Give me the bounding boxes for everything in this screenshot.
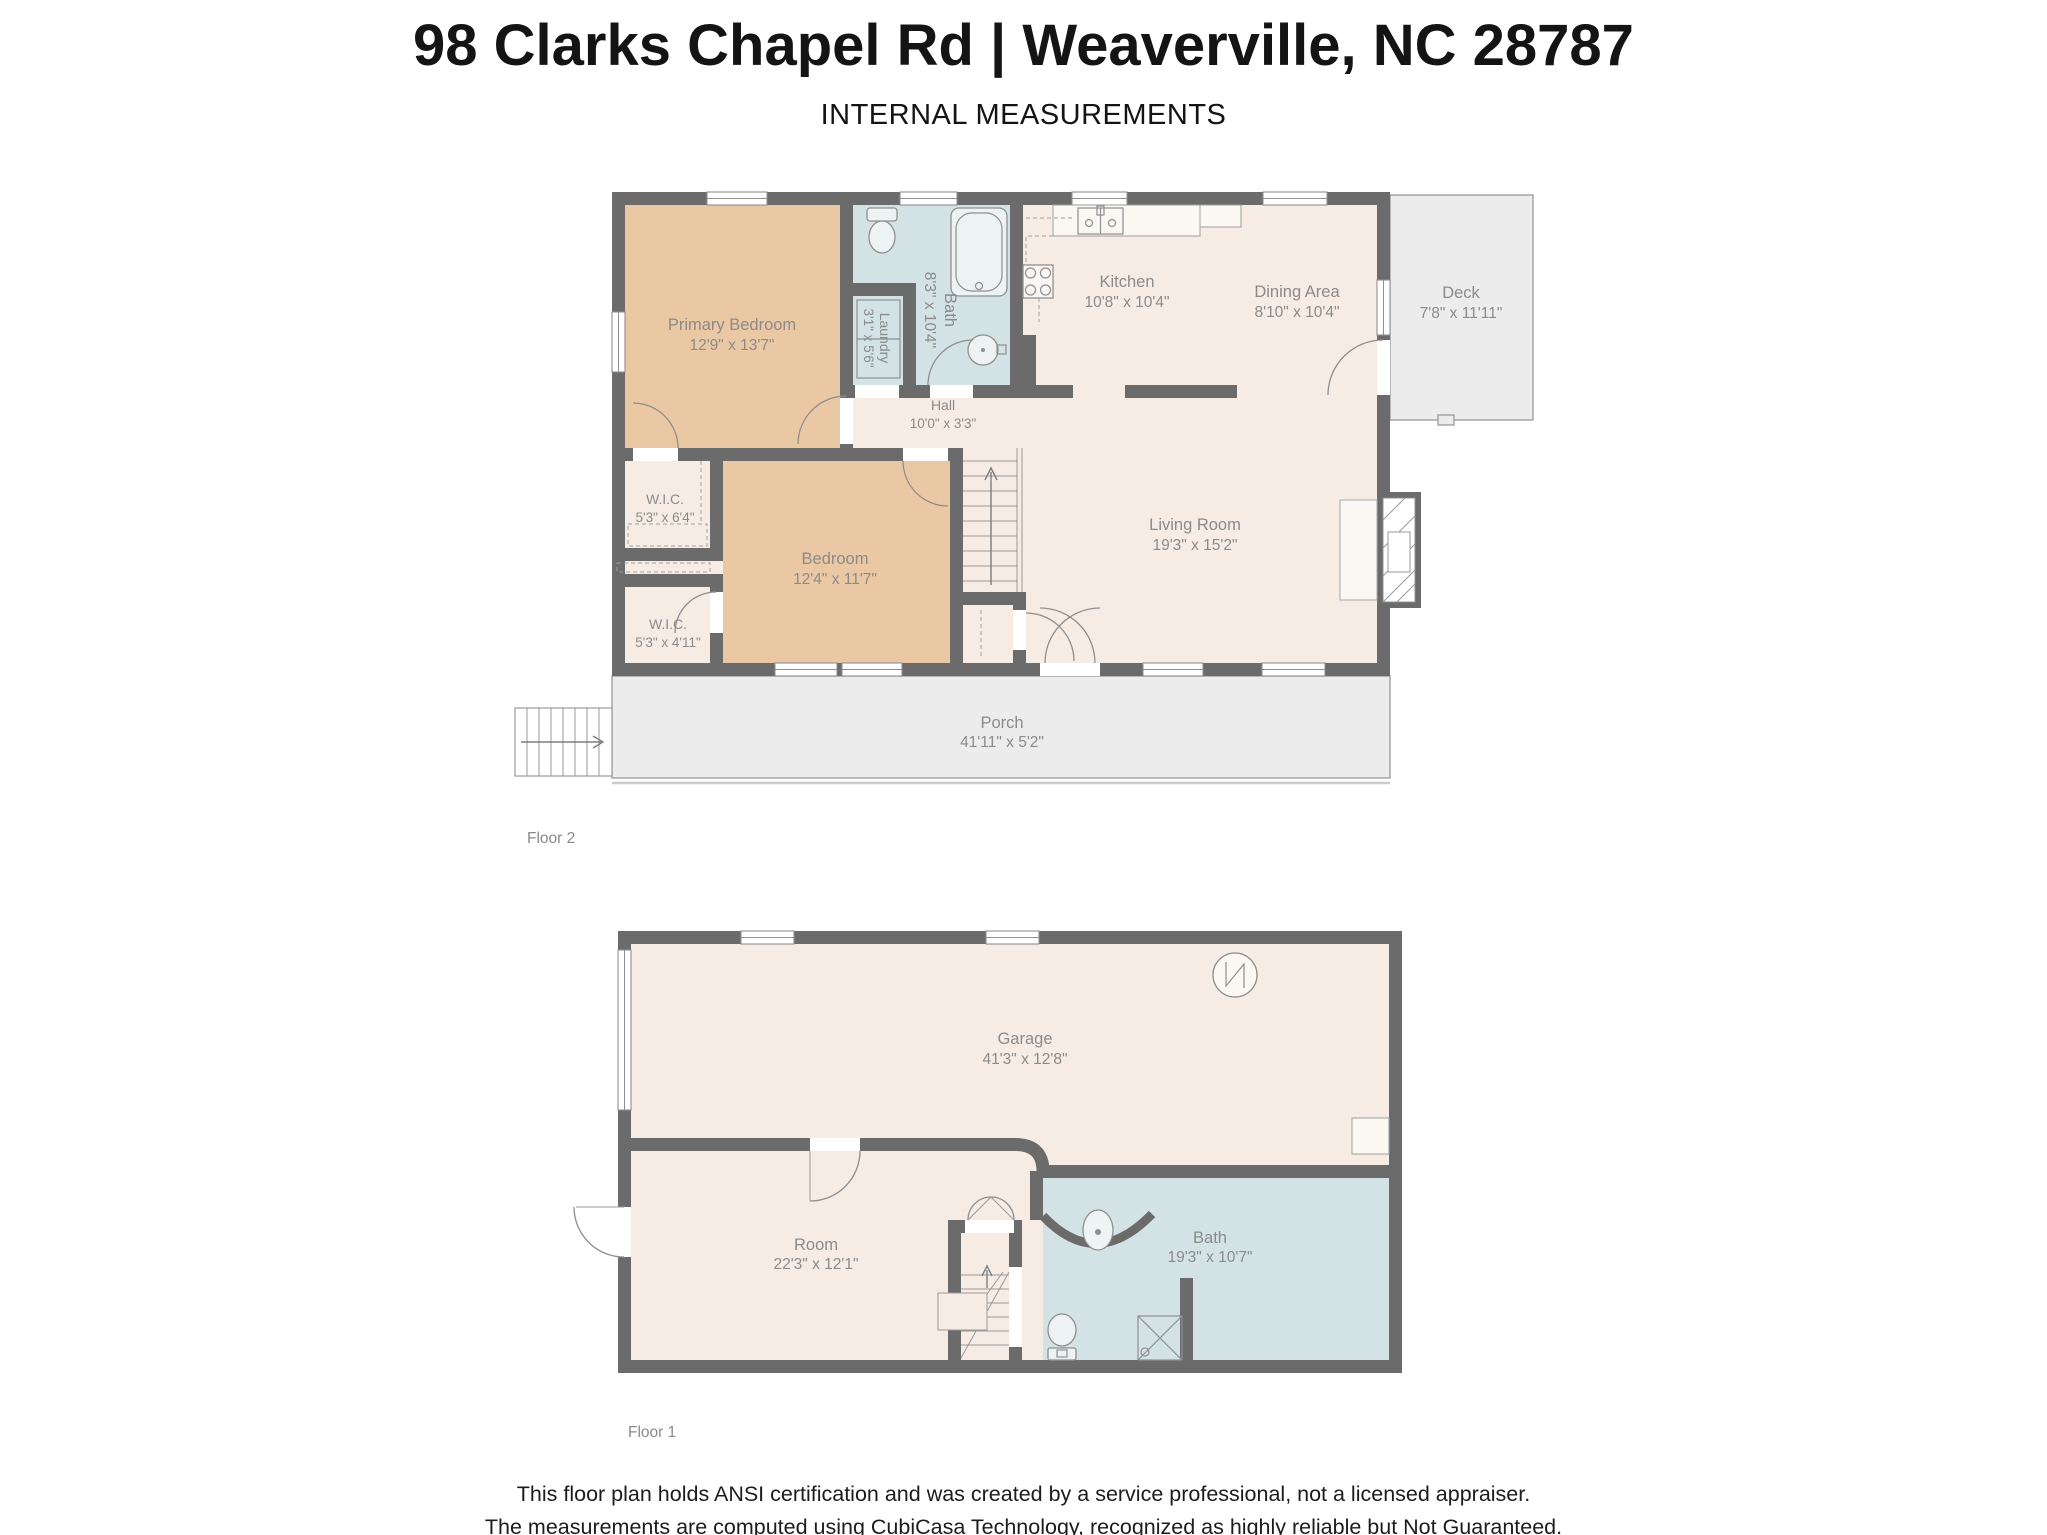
room-bath-floor1 [1043, 1178, 1389, 1360]
wic-lower-label: W.I.C. [649, 616, 687, 632]
stove-icon [1023, 265, 1053, 298]
bath-label: Bath [941, 293, 959, 327]
dining-area-label: Dining Area [1254, 283, 1340, 301]
toilet-floor1-icon [1048, 1314, 1076, 1360]
kitchen-label: Kitchen [1099, 273, 1154, 291]
garage-label: Garage [997, 1030, 1052, 1048]
hall-label: Hall [931, 397, 955, 413]
bathtub-icon [951, 208, 1007, 296]
floor-plan-page: 98 Clarks Chapel Rd | Weaverville, NC 28… [0, 0, 2047, 1535]
dining-area-dims: 8'10" x 10'4" [1254, 304, 1339, 321]
utility-box [1352, 1118, 1389, 1154]
room-dims: 22'3" x 12'1" [773, 1256, 858, 1273]
floor1-plan: Garage 41'3" x 12'8" Room 22'3" x 12'1" … [560, 920, 1410, 1390]
kitchen-dims: 10'8" x 10'4" [1084, 294, 1169, 311]
floor2-plan: Primary Bedroom 12'9" x 13'7" Bath 8'3" … [505, 180, 1565, 800]
porch-label: Porch [980, 714, 1023, 732]
living-room-label: Living Room [1149, 516, 1241, 534]
bath-floor1-dims: 19'3" x 10'7" [1167, 1249, 1252, 1266]
room-label: Room [794, 1236, 838, 1254]
hall-dims: 10'0" x 3'3" [910, 416, 977, 431]
disclaimer-line1: This floor plan holds ANSI certification… [0, 1478, 2047, 1511]
disclaimer-line2: The measurements are computed using Cubi… [0, 1511, 2047, 1535]
deck-dims: 7'8" x 11'11" [1420, 305, 1503, 322]
bedroom-label: Bedroom [802, 550, 869, 568]
garage-dims: 41'3" x 12'8" [982, 1051, 1067, 1068]
deck-step [1438, 415, 1454, 425]
laundry-dims: 3'1" x 5'6" [861, 308, 876, 367]
primary-bedroom-dims: 12'9" x 13'7" [689, 337, 774, 354]
bath-dims: 8'3" x 10'4" [921, 272, 938, 348]
water-heater-icon [1213, 953, 1257, 997]
primary-bedroom-label: Primary Bedroom [668, 316, 796, 334]
wic-lower-dims: 5'3" x 4'11" [635, 635, 701, 650]
deck-label: Deck [1442, 284, 1480, 302]
wic-upper-label: W.I.C. [646, 491, 684, 507]
disclaimer: This floor plan holds ANSI certification… [0, 1478, 2047, 1535]
laundry-label: Laundry [877, 313, 893, 364]
bedroom-dims: 12'4" x 11'7" [793, 571, 877, 588]
exterior-stairs-icon [515, 708, 612, 776]
floor2-caption: Floor 2 [527, 830, 575, 848]
toilet-icon [867, 208, 897, 253]
living-room-dims: 19'3" x 15'2" [1152, 537, 1237, 554]
page-title: 98 Clarks Chapel Rd | Weaverville, NC 28… [0, 12, 2047, 79]
page-subtitle: INTERNAL MEASUREMENTS [0, 99, 2047, 132]
fireplace-icon [1340, 498, 1415, 602]
floor1-caption: Floor 1 [628, 1424, 676, 1442]
bath-floor1-label: Bath [1193, 1229, 1227, 1247]
porch-dims: 41'11" x 5'2" [960, 734, 1044, 751]
wic-upper-dims: 5'3" x 6'4" [635, 510, 694, 525]
